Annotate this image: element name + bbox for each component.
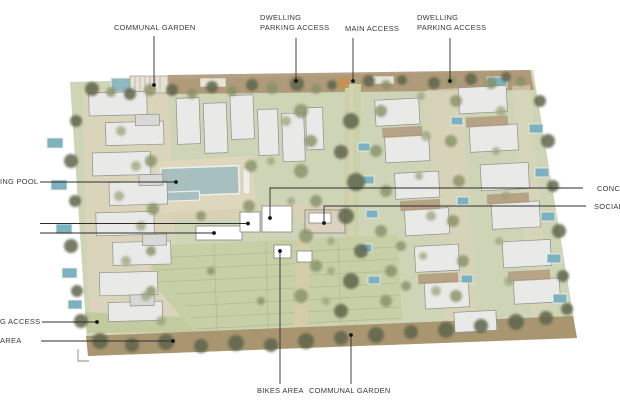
- label-main-access: MAIN ACCESS: [345, 24, 399, 34]
- label-line: PARKING ACCESS: [260, 23, 329, 33]
- label-swimming-pool: ING POOL: [0, 177, 35, 187]
- label-communal-garden-bottom: COMMUNAL GARDEN: [309, 386, 391, 396]
- label-communal-garden-top: COMMUNAL GARDEN: [114, 23, 196, 33]
- label-line: PARKING ACCESS: [417, 23, 486, 33]
- label-bikes-area: BIKES AREA: [257, 386, 304, 396]
- label-parking-access: G ACCESS: [0, 317, 37, 327]
- corner-bracket-line: [78, 349, 89, 361]
- label-line: DWELLING: [417, 13, 486, 23]
- label-dwelling-parking-access-right: DWELLING PARKING ACCESS: [417, 13, 486, 33]
- label-line: DWELLING: [260, 13, 329, 23]
- masterplan-canvas: COMMUNAL GARDEN DWELLING PARKING ACCESS …: [0, 0, 620, 406]
- label-dwelling-parking-access-left: DWELLING PARKING ACCESS: [260, 13, 329, 33]
- label-parking-area: AREA: [0, 336, 21, 346]
- label-social: SOCIAL: [594, 202, 620, 212]
- label-concierge: CONC: [597, 184, 620, 194]
- site-plan-rendering: [0, 0, 620, 406]
